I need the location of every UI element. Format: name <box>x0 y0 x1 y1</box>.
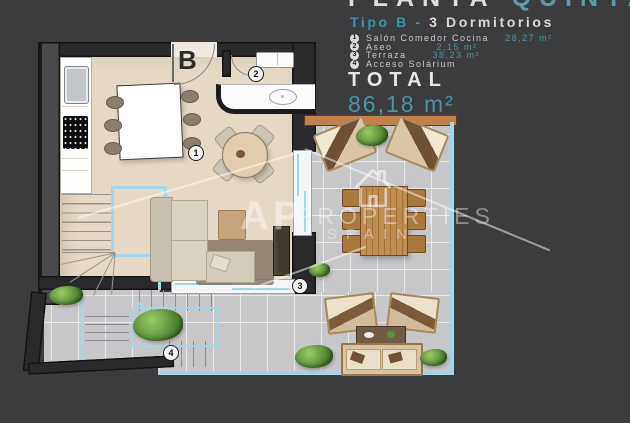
floorplan-page: B <box>0 0 630 423</box>
total-label: TOTAL <box>348 69 448 92</box>
marker-aseo: 2 <box>248 66 264 82</box>
sofa-pillow <box>209 254 230 273</box>
kitchen-cabinet-line <box>62 106 88 107</box>
wall-left <box>38 42 60 305</box>
page-title: PLANTAQUINTA <box>348 0 630 13</box>
sofa-back <box>150 197 173 282</box>
toilet-cistern <box>256 52 294 68</box>
solarium-bush-small <box>49 286 83 305</box>
solarium-bush-large <box>133 309 183 341</box>
legend-label: Acceso Solárium <box>366 60 456 69</box>
legend-row-solarium: 4 Acceso Solárium <box>350 60 553 69</box>
kitchen-cabinet-line <box>62 170 88 171</box>
unit-type-rooms: 3 Dormitorios <box>429 14 554 30</box>
legend: 1 Salón Comedor Cocina 28,27 m² 2 Aseo 2… <box>350 34 553 68</box>
bathroom-vanity <box>216 84 315 114</box>
outdoor-chair <box>407 235 426 253</box>
outdoor-chair <box>342 212 361 230</box>
island-stool <box>104 119 122 132</box>
terrace-border-right <box>450 122 454 375</box>
vanity-sink <box>269 89 297 105</box>
island-stool <box>181 90 199 103</box>
sofa-cushion <box>171 240 208 281</box>
outdoor-chair <box>342 189 361 207</box>
legend-num-badge: 4 <box>350 60 359 69</box>
unit-type-heading: Tipo B - 3 Dormitorios <box>350 14 554 30</box>
kitchen-sink <box>64 66 89 104</box>
cistern-divider <box>277 53 278 65</box>
kitchen-cooktop <box>63 116 88 149</box>
island-stool <box>106 96 124 109</box>
unit-type-label: Tipo B - <box>350 14 429 30</box>
outdoor-chair <box>342 235 361 253</box>
sliding-door-terrace-right <box>293 150 312 236</box>
stairs-landing-line <box>62 252 115 253</box>
tv-cabinet <box>273 226 290 276</box>
marker-terraza: 3 <box>292 278 308 294</box>
outdoor-sofa <box>341 343 423 376</box>
sofa-cushion <box>171 200 208 241</box>
side-pouf <box>218 210 246 240</box>
kitchen-cabinet-line <box>62 158 88 159</box>
page-title-secondary: QUINTA <box>512 0 630 12</box>
sink-drain <box>281 95 284 98</box>
unit-letter-label: B <box>178 45 197 76</box>
outdoor-chair <box>407 189 426 207</box>
marker-salon: 1 <box>188 145 204 161</box>
legend-area: 28,27 m² <box>505 34 553 43</box>
marker-solarium: 4 <box>163 345 179 361</box>
table-centerpiece <box>236 150 245 158</box>
lounge-plant-left <box>295 345 333 368</box>
table-plant <box>387 331 395 338</box>
stairs-flight <box>62 186 112 252</box>
island-stool <box>104 142 122 155</box>
solarium-steps-side <box>85 309 129 342</box>
glass-pane <box>297 154 299 196</box>
wall-aseo-stub <box>222 50 231 77</box>
lounge-plant-right <box>420 349 447 366</box>
terrace-plant <box>356 125 388 146</box>
glass-pane <box>232 288 290 290</box>
island-stool <box>183 113 201 126</box>
legend-num-badge: 3 <box>350 51 359 60</box>
glass-pane <box>304 191 306 232</box>
round-dining-table <box>222 132 268 178</box>
outdoor-chair <box>407 212 426 230</box>
page-title-primary: PLANTA <box>348 0 496 12</box>
sofa-chaise <box>206 251 255 283</box>
terrace-plant-small <box>309 263 330 277</box>
total-value: 86,18 m² <box>348 91 455 118</box>
stairs-border-vertical <box>81 289 84 362</box>
outdoor-dining-table <box>360 186 408 256</box>
table-tray <box>364 332 374 338</box>
kitchen-island <box>116 83 183 161</box>
